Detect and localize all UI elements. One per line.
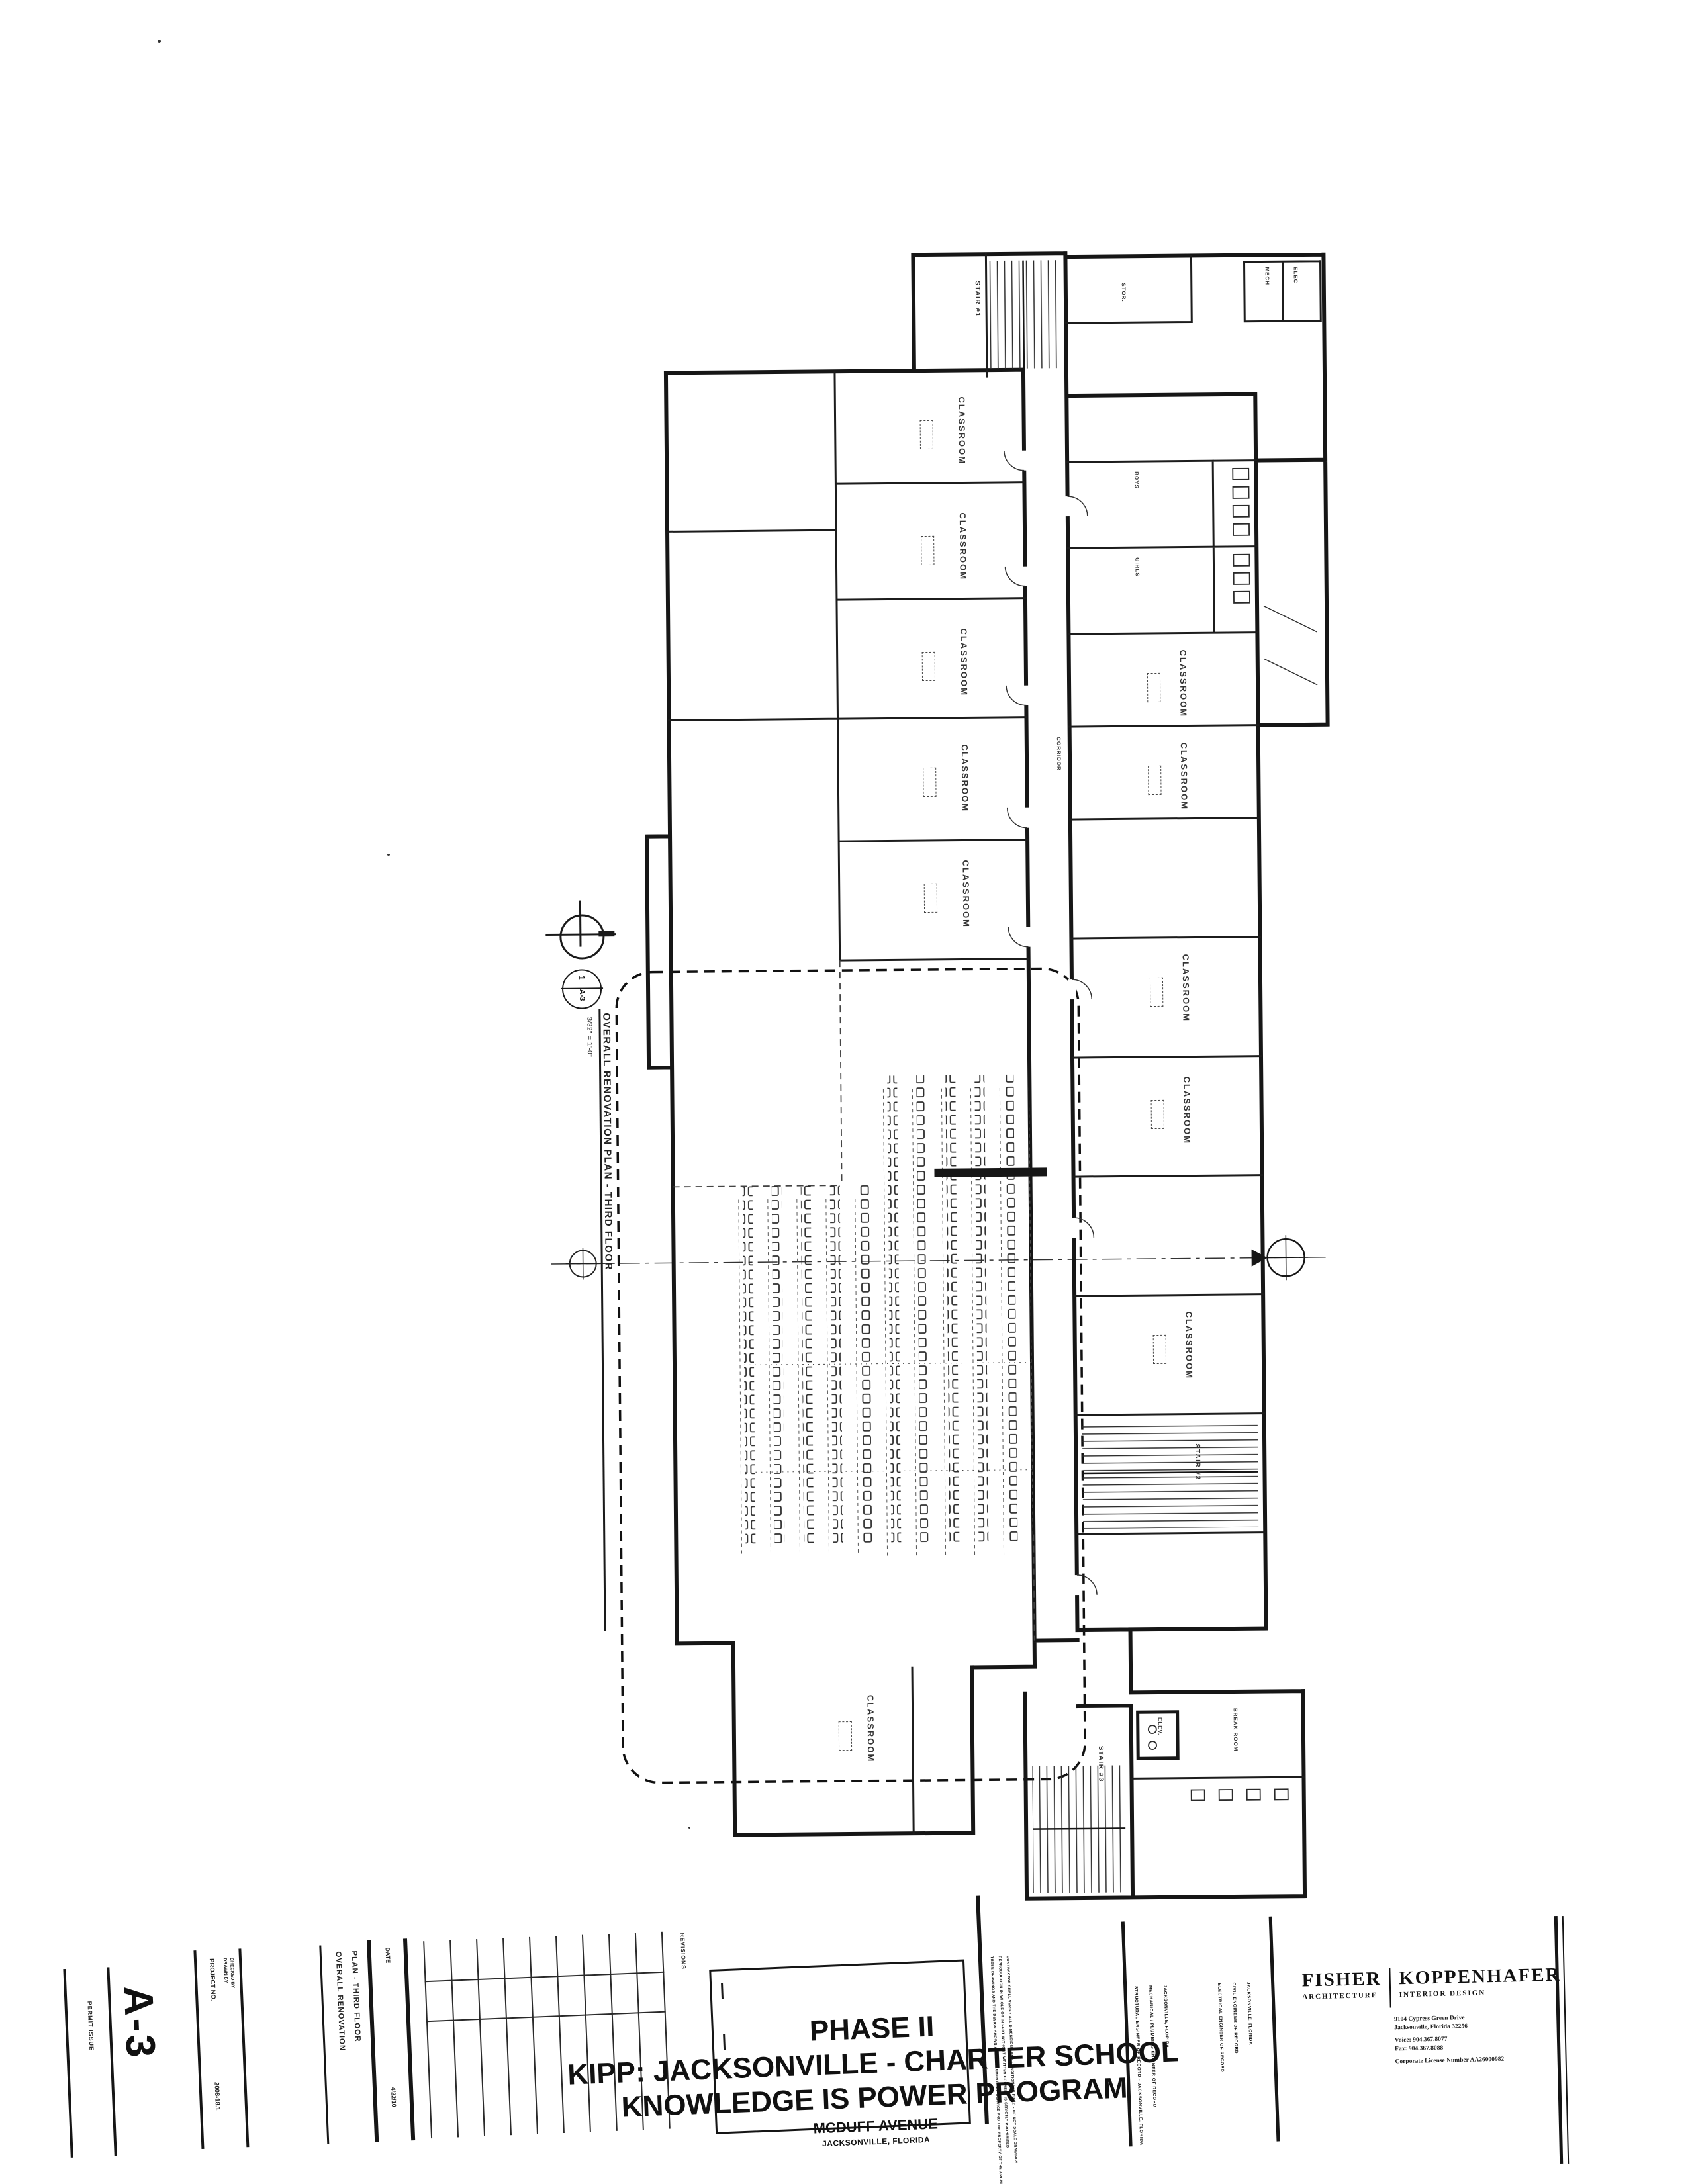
consultant-note: MECHANICAL / PLUMBING ENGINEER OF RECORD (1148, 1985, 1156, 2107)
firm-name-left: FISHER (1301, 1968, 1382, 1992)
consultant-note: ELECTRICAL ENGINEER OF RECORD (1217, 1983, 1225, 2072)
firm-name-right: KOPPENHAFER (1399, 1964, 1561, 1990)
firm-block: FISHER ARCHITECTURE KOPPENHAFER INTERIOR… (1301, 1964, 1568, 2068)
firm-discipline-left: ARCHITECTURE (1302, 1991, 1382, 2001)
consultants-block: STRUCTURAL ENGINEER OF RECORD - JACKSONV… (0, 0, 1688, 2184)
drawing-sheet: CLASSROOM CLASSROOM CLASSROOM CLASSROOM … (0, 0, 1688, 2184)
firm-divider (1389, 1968, 1391, 2008)
consultant-note: JACKSONVILLE, FLORIDA (1246, 1982, 1252, 2045)
consultant-note: STRUCTURAL ENGINEER OF RECORD - JACKSONV… (1133, 1986, 1143, 2146)
titleblock-rule (1121, 1921, 1133, 2146)
consultant-note: JACKSONVILLE, FLORIDA (1162, 1985, 1169, 2048)
consultant-note: CIVIL ENGINEER OF RECORD (1231, 1983, 1239, 2054)
titleblock-rule (1269, 1917, 1280, 2142)
firm-address: 9104 Cypress Green Drive Jacksonville, F… (1394, 2011, 1569, 2066)
